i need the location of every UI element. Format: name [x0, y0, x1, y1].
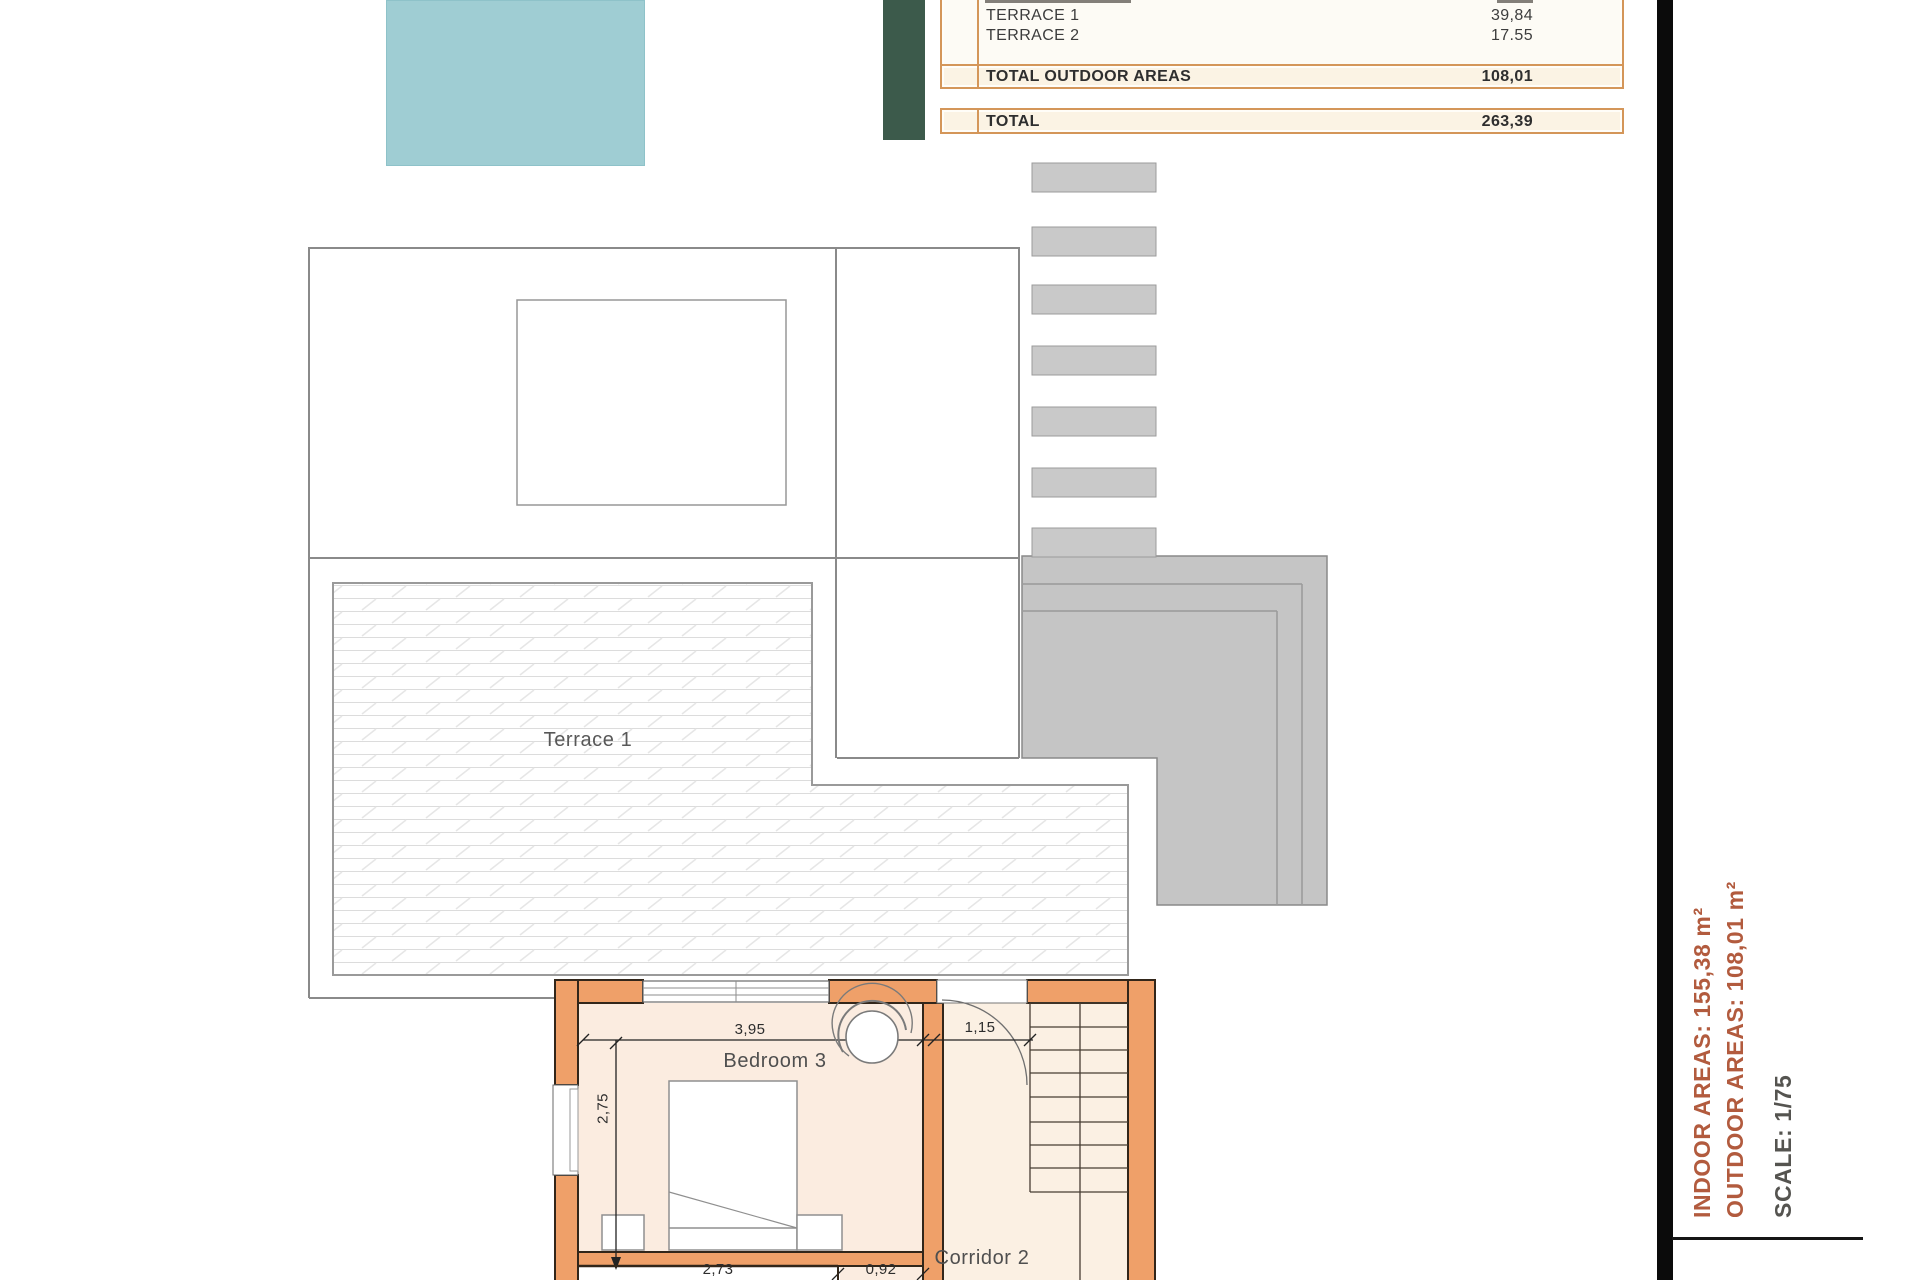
row-value: 39,84 — [1491, 7, 1533, 25]
bedroom-label: Bedroom 3 — [695, 1050, 855, 1073]
sheet-edge-bar — [1657, 0, 1673, 1280]
table-column-divider — [977, 0, 979, 64]
window-top — [643, 981, 829, 1002]
total-value: 263,39 — [1482, 113, 1533, 131]
table-column-divider — [977, 110, 979, 132]
dim-bedroom-width: 3,95 — [715, 1021, 785, 1038]
total-outdoor-label: TOTAL OUTDOOR AREAS — [986, 68, 1191, 86]
title-block-line — [1672, 1237, 1863, 1240]
corridor-label: Corridor 2 — [902, 1247, 1062, 1270]
dim-bottom-room-width: 2,73 — [683, 1261, 753, 1278]
total-outdoor-value: 108,01 — [1482, 68, 1533, 86]
scale-text: SCALE: 1/75 — [1770, 1075, 1797, 1218]
dim-door-width: 1,15 — [947, 1019, 1013, 1036]
table-row: TOTAL OUTDOOR AREAS 108,01 — [986, 67, 1533, 86]
indoor-areas-text: INDOOR AREAS: 155,38 m² — [1689, 907, 1716, 1218]
pergola-slats — [1032, 163, 1156, 557]
table-row: TERRACE 1 39,84 — [986, 6, 1533, 26]
table-column-divider — [977, 66, 979, 87]
row-label: TERRACE 1 — [986, 7, 1079, 25]
dim-bedroom-depth: 2,75 — [595, 1082, 612, 1136]
terrace-deck — [333, 583, 1128, 975]
terrace-label: Terrace 1 — [498, 729, 678, 752]
total-row: TOTAL 263,39 — [940, 108, 1624, 134]
nightstand-left — [602, 1215, 644, 1250]
row-value: 17.55 — [1491, 27, 1533, 45]
floor-plan-sheet: TERRACE 1 39,84 TERRACE 2 17.55 TOTAL OU… — [0, 0, 1920, 1280]
cropped-row-remnant — [1497, 0, 1533, 3]
plan-drawing — [0, 0, 1920, 1280]
window-left — [553, 1085, 578, 1175]
table-row: TERRACE 2 17.55 — [986, 26, 1533, 46]
table-row: TOTAL 263,39 — [986, 112, 1533, 131]
nightstand-right — [797, 1215, 842, 1250]
total-label: TOTAL — [986, 113, 1040, 131]
cropped-row-remnant — [985, 0, 1131, 3]
dim-bottom-opening: 0,92 — [848, 1261, 914, 1278]
outdoor-areas-text: OUTDOOR AREAS: 108,01 m² — [1722, 881, 1749, 1218]
total-outdoor-row: TOTAL OUTDOOR AREAS 108,01 — [940, 64, 1624, 89]
row-label: TERRACE 2 — [986, 27, 1079, 45]
